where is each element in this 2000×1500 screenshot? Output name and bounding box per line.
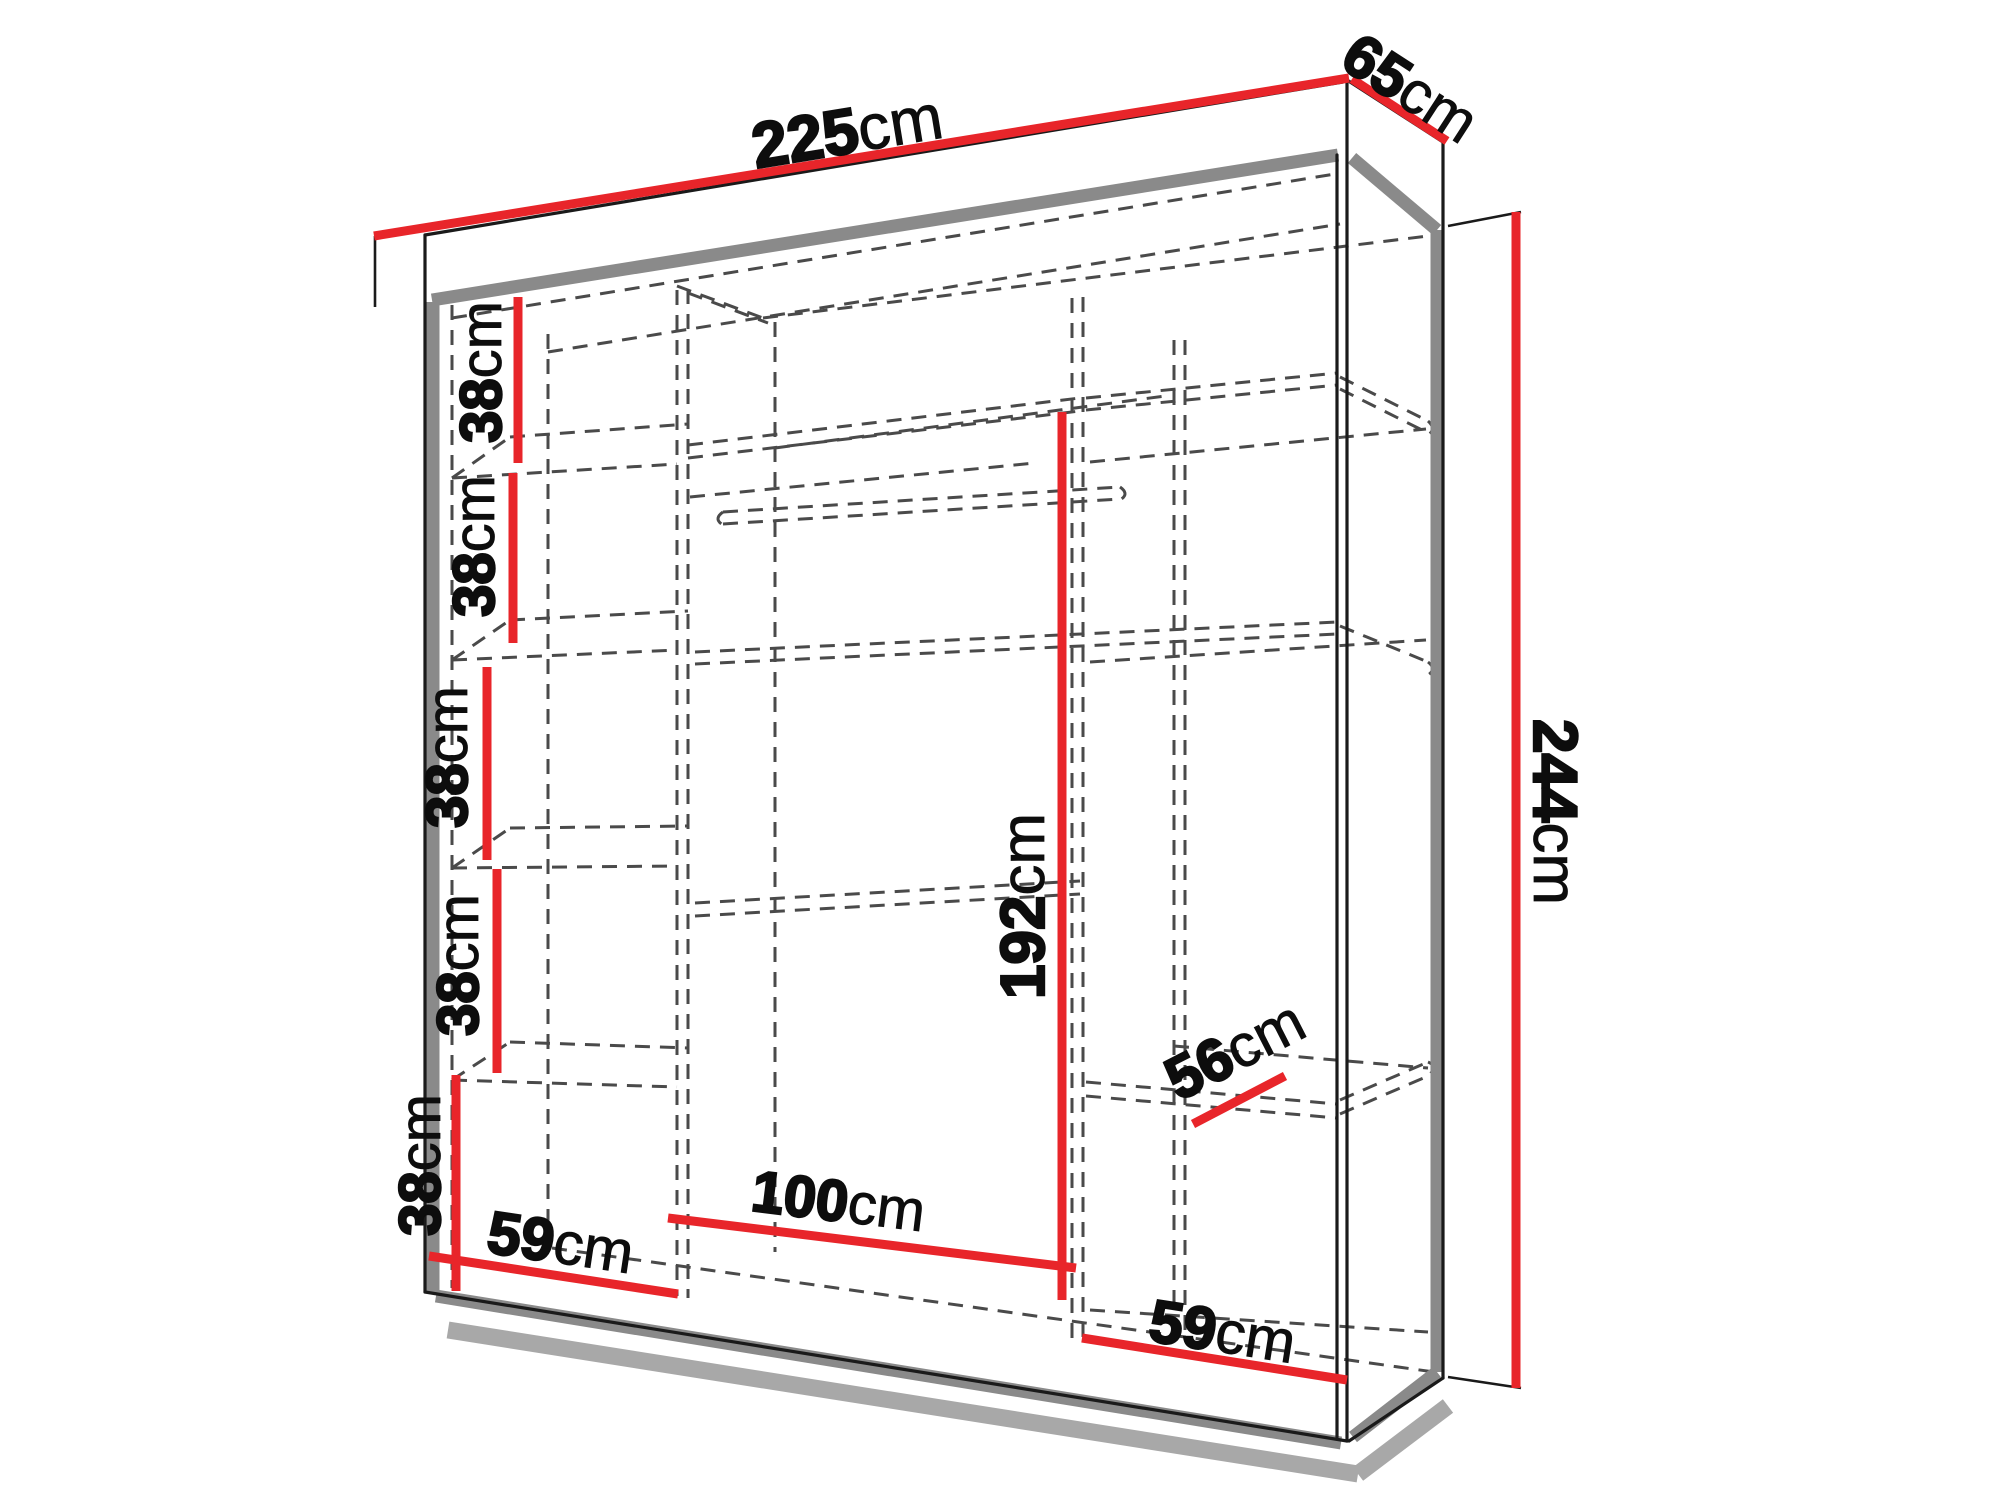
dim-shelf-gap-3-label: 38cm bbox=[415, 686, 480, 828]
diagram-canvas: 225cm 65cm 244cm 192cm 100cm 59cm 59cm 5… bbox=[0, 0, 2000, 1500]
dim-shelf-gap-5-label: 38cm bbox=[388, 1094, 453, 1236]
dim-height-label: 244cm bbox=[1520, 719, 1589, 905]
dim-hanging-height-label: 192cm bbox=[989, 813, 1058, 999]
dim-width-label: 225cm bbox=[747, 80, 948, 182]
dim-right-width-label: 59cm bbox=[1145, 1287, 1300, 1376]
wardrobe-dimension-diagram: 225cm 65cm 244cm 192cm 100cm 59cm 59cm 5… bbox=[0, 0, 2000, 1500]
dim-shelf-gap-1-label: 38cm bbox=[449, 301, 514, 443]
dim-shelf-gap-4-label: 38cm bbox=[426, 894, 491, 1036]
dim-left-width-label: 59cm bbox=[483, 1198, 638, 1286]
hidden-structure-lines bbox=[452, 174, 1436, 1372]
dim-depth-label: 65cm bbox=[1331, 20, 1491, 156]
dim-shelf-depth-label: 56cm bbox=[1154, 987, 1315, 1113]
dim-shelf-gap-2-label: 38cm bbox=[442, 475, 507, 617]
dimension-labels: 225cm 65cm 244cm 192cm 100cm 59cm 59cm 5… bbox=[388, 20, 1588, 1376]
dimension-lines bbox=[374, 78, 1516, 1388]
